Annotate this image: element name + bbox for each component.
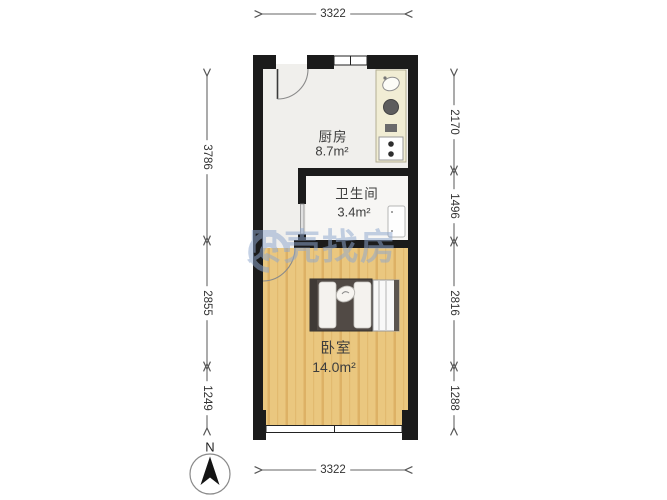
- wall-corner-bottom-right: [402, 410, 418, 440]
- bed-headboard: [310, 279, 317, 331]
- floorplan-page: 厨房 8.7m² 卫生间 3.4m² 卧室 14.0m² 3322 3322 3…: [0, 0, 667, 500]
- wall-bedroom-top: [294, 240, 408, 248]
- wall-kitchen-bathroom: [298, 168, 408, 176]
- dimension-label-right-0: 2170: [447, 105, 461, 139]
- burner-icon: [388, 141, 394, 147]
- bathroom-area: 3.4m²: [337, 206, 370, 219]
- hood-icon: [385, 124, 397, 132]
- dimension-label-right-2: 2816: [447, 286, 461, 320]
- knob-icon: [391, 230, 393, 232]
- wall-top-a: [253, 55, 276, 69]
- dimension-label-left-2: 1249: [200, 381, 214, 415]
- pillow: [354, 282, 371, 328]
- north-label: N: [205, 440, 214, 455]
- kitchen-counter: [376, 70, 406, 162]
- wall-right: [408, 55, 418, 440]
- dimension-label-right-1: 1496: [447, 189, 461, 223]
- kitchen-label: 厨房: [319, 130, 348, 144]
- burner-icon: [388, 151, 394, 157]
- floorplan-drawing: [0, 0, 667, 500]
- kitchen-area: 8.7m²: [315, 145, 348, 158]
- pillow: [319, 282, 336, 328]
- washing-machine-icon: [388, 206, 405, 237]
- bathroom-label: 卫生间: [335, 187, 379, 201]
- dimension-label-right-3: 1288: [447, 381, 461, 415]
- bedroom-floor: [263, 248, 408, 426]
- wall-bathroom-left-upper: [298, 168, 306, 204]
- north-compass-icon: [190, 454, 230, 494]
- wall-top-b: [307, 55, 334, 69]
- bathroom-door-leaf: [301, 204, 305, 234]
- bedroom-furniture: [310, 279, 399, 331]
- compass-needle: [201, 457, 220, 486]
- wardrobe-side: [394, 280, 399, 331]
- knob-icon: [391, 211, 393, 213]
- basin-icon: [384, 100, 399, 115]
- bedroom-area: 14.0m²: [312, 360, 356, 374]
- faucet-icon: [383, 76, 386, 79]
- dimension-label-left-1: 2855: [200, 286, 214, 320]
- dimension-label-left-0: 3786: [200, 140, 214, 174]
- bathroom-fixtures: [388, 206, 405, 237]
- wall-corner-bottom-left: [253, 410, 266, 440]
- wall-top-c: [367, 55, 418, 69]
- dimension-label-top: 3322: [316, 7, 350, 21]
- bedroom-label: 卧室: [321, 342, 352, 357]
- dimension-label-bottom: 3322: [316, 463, 350, 477]
- wall-left: [253, 55, 263, 440]
